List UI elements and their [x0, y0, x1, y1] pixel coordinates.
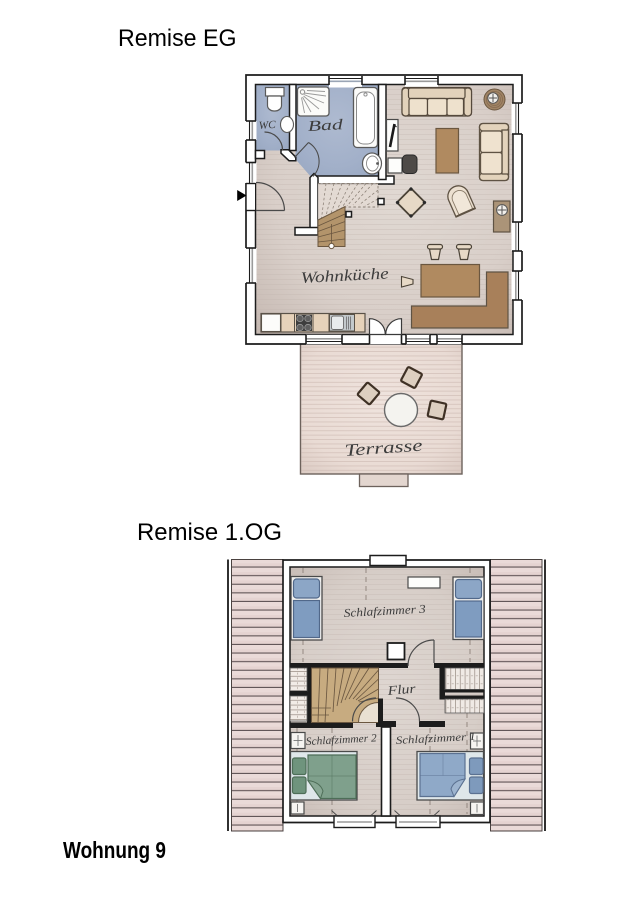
svg-text:Remise EG: Remise EG — [118, 25, 237, 52]
svg-text:Wohnung 9: Wohnung 9 — [63, 837, 166, 863]
svg-text:WC: WC — [258, 119, 276, 132]
svg-text:Bad: Bad — [307, 117, 343, 135]
svg-text:Remise 1.OG: Remise 1.OG — [137, 519, 282, 546]
svg-text:Flur: Flur — [386, 681, 418, 699]
